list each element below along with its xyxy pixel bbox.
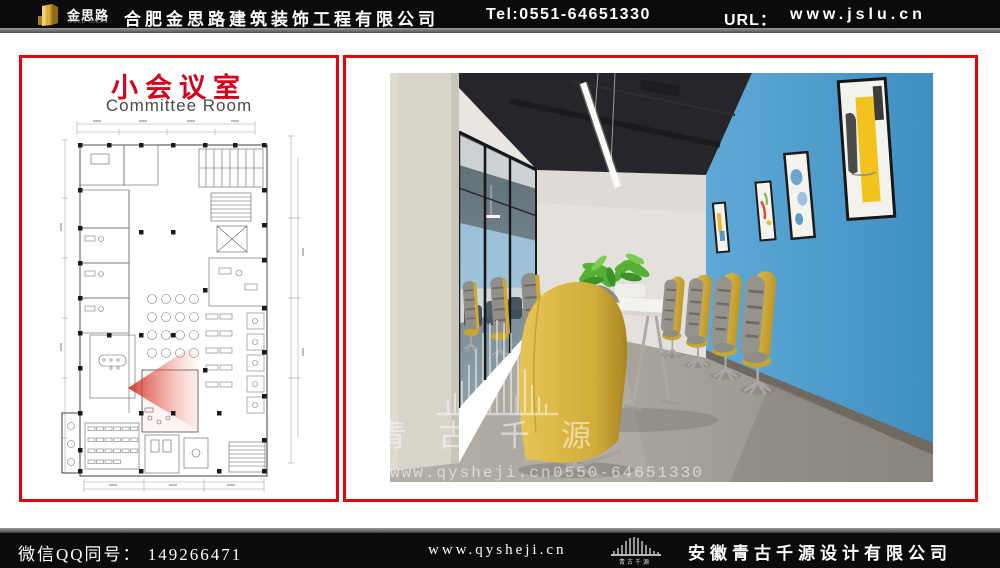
wechat-qq-text: 微信QQ同号： 149266471 [18, 540, 242, 565]
footer-site-text: www.qysheji.cn [428, 542, 567, 559]
footer-company-text: 安徽青古千源设计有限公司 [688, 539, 952, 564]
header-company-name: 合肥金思路建筑装饰工程有限公司 [124, 5, 439, 30]
watermark-phone-text: 0550-64651330 [553, 464, 704, 482]
artwork-frame-4 [838, 78, 895, 219]
gold-building-icon [36, 2, 63, 27]
watermark-site-text: www.qysheji.cn [390, 464, 552, 482]
header-url-text: www.jslu.cn [790, 6, 926, 24]
floor-plan-drawing [49, 118, 309, 492]
brand-subtitle: GOLD IDEAS [68, 19, 109, 25]
header-url-label: URL： [724, 6, 777, 30]
footer-brand-caption: 青古千源 [604, 557, 666, 566]
watermark-brand-text: 青 古 千 源 [390, 420, 603, 453]
meeting-room-rendering: 青 古 千 源 www.qysheji.cn 0550-64651330 [390, 73, 933, 482]
plan-subtitle: Committee Room [19, 96, 339, 116]
page-root: { "header": { "brand": { "name_cn": "金思路… [0, 0, 1000, 568]
header-tel-text: Tel:0551-64651330 [486, 6, 651, 24]
footer-brand-icon [608, 535, 664, 557]
